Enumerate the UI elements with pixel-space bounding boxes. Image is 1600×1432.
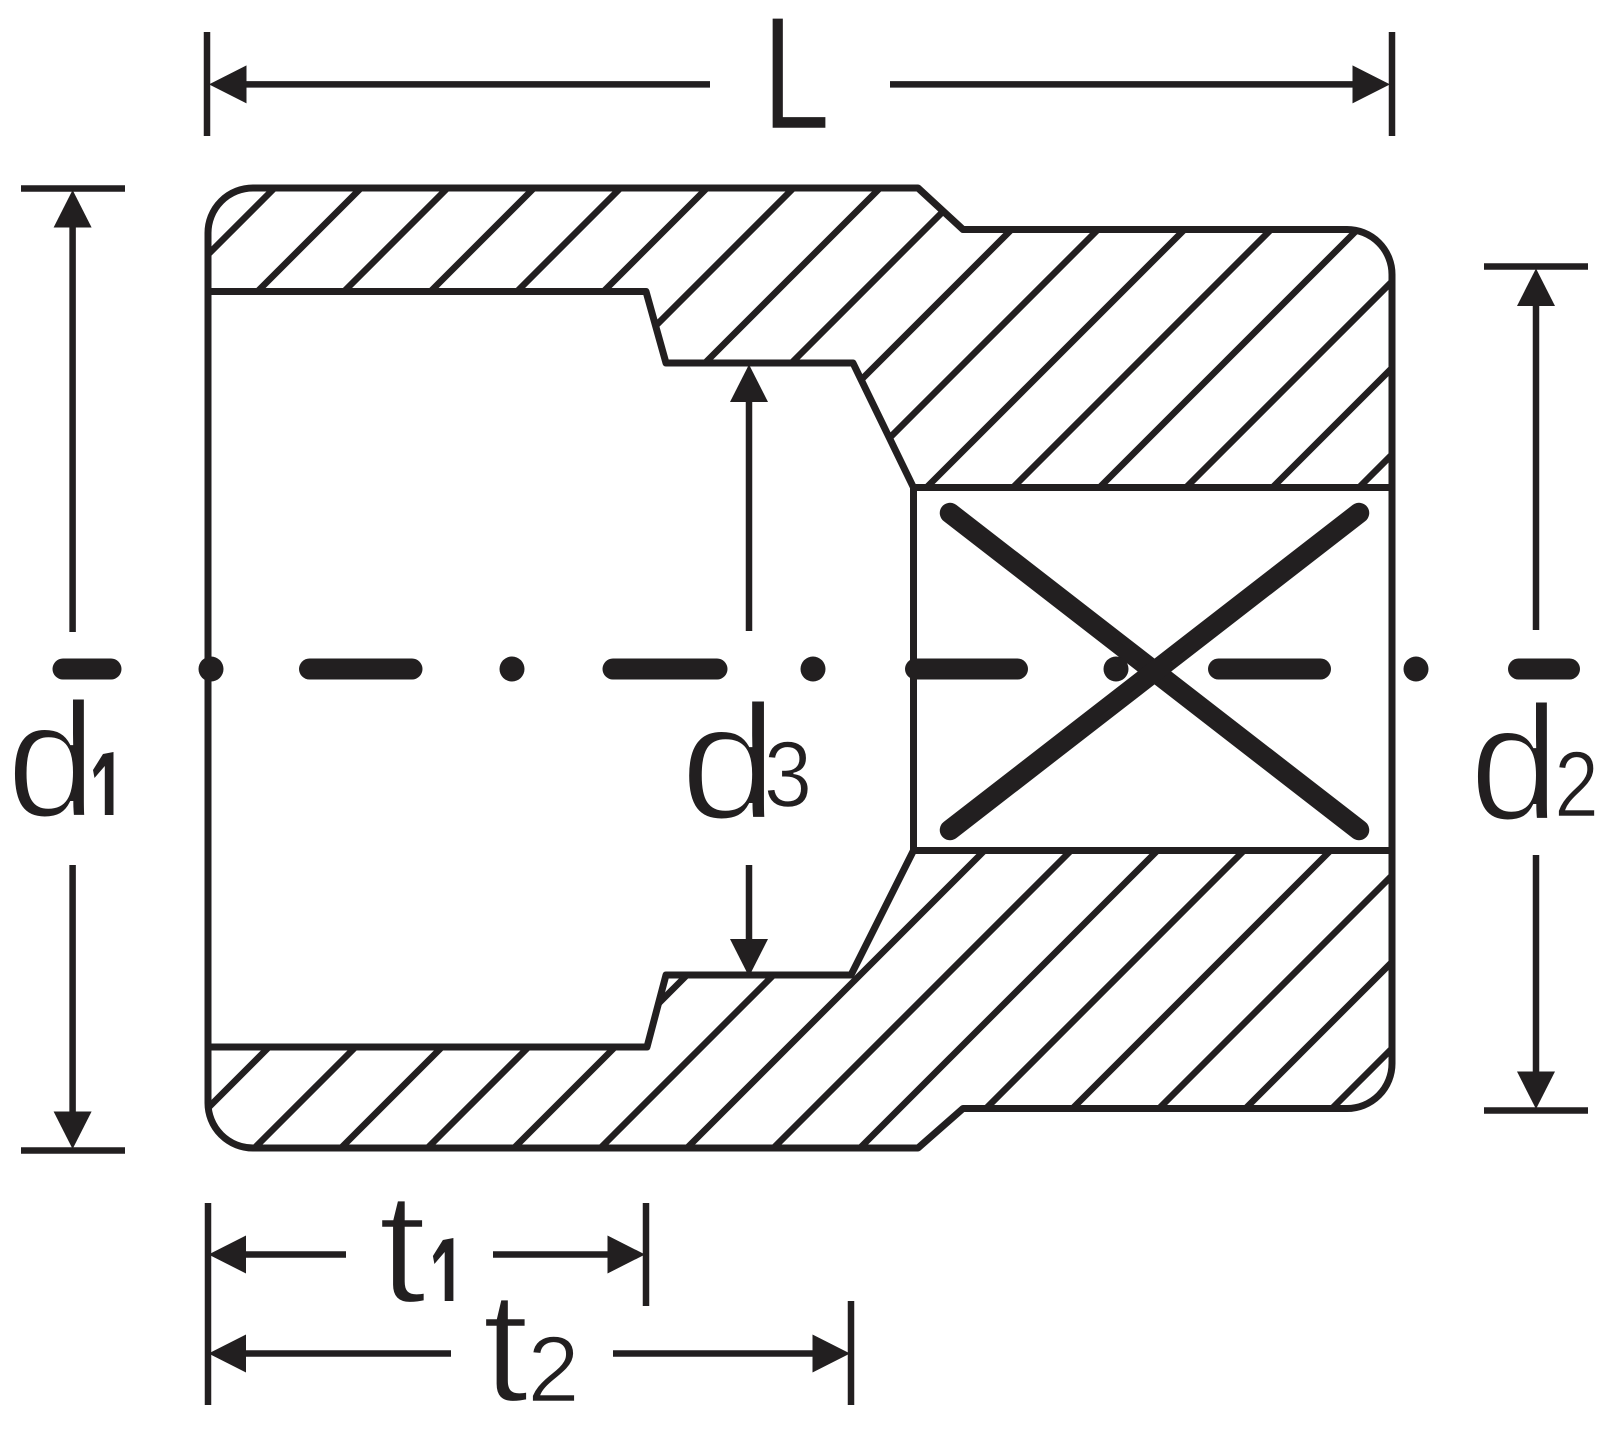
svg-text:d: d: [1470, 672, 1560, 855]
svg-text:2: 2: [528, 1317, 580, 1422]
svg-text:t: t: [378, 1158, 427, 1336]
svg-text:3: 3: [764, 723, 812, 828]
svg-text:L: L: [762, 0, 830, 164]
svg-text:2: 2: [1554, 733, 1599, 837]
svg-text:t: t: [482, 1258, 530, 1432]
svg-text:d: d: [7, 669, 97, 852]
